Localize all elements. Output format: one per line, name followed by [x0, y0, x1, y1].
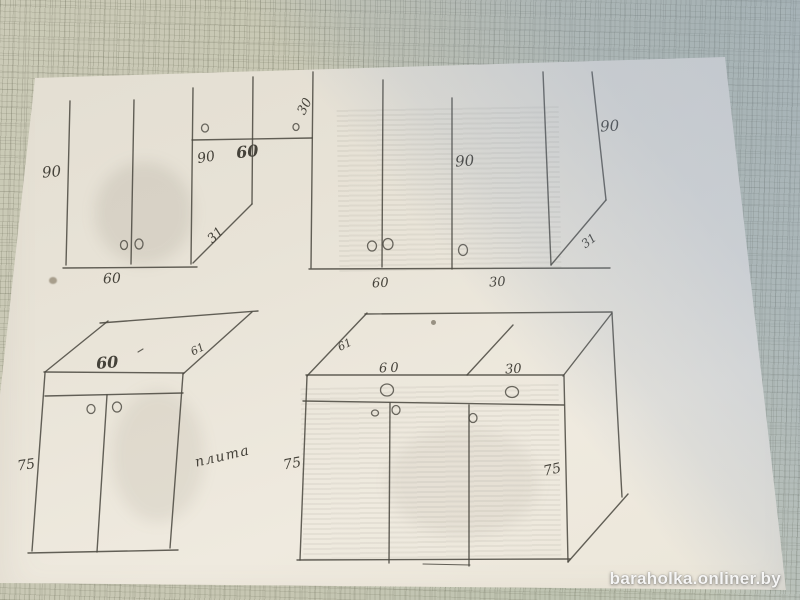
base-cabinet-left-sketch: 60 61 75 [16, 311, 258, 553]
photo-of-cabinet-sketch: 90 60 90 60 31 30 90 [0, 0, 800, 600]
dim-height-label: 90 [41, 162, 62, 182]
cabinet-sketch-drawing: 90 60 90 60 31 30 90 [0, 0, 800, 600]
dim-diagonal-label: 31 [579, 231, 600, 251]
dim-mid-height-label: 90 [454, 151, 475, 170]
wall-cabinet-left-sketch: 90 60 [41, 88, 197, 287]
base-cabinet-right-sketch: 61 60 30 75 75 [282, 312, 628, 566]
dim-shelf-width-label: 30 [489, 275, 507, 291]
dim-inner-width-label: 90 [196, 148, 216, 167]
dim-height-label: 75 [16, 456, 36, 474]
dim-shelf-width-label: 60 [235, 141, 259, 162]
wall-cabinet-right-sketch: 90 90 31 60 30 [309, 72, 620, 291]
dim-back-height-label: 90 [599, 116, 620, 135]
dim-top-width-label: 60 [95, 352, 119, 373]
dim-left-width-label: 60 [379, 361, 402, 377]
dim-width-label: 60 [103, 271, 121, 288]
dim-back-height-label: 75 [542, 460, 563, 479]
wall-corner-unit-sketch: 90 60 31 30 [138, 77, 316, 352]
stove-note: плита [193, 442, 251, 470]
dim-front-height-label: 75 [282, 455, 302, 474]
dim-right-width-label: 30 [505, 362, 523, 378]
watermark-text: baraholka.onliner.by [610, 569, 781, 589]
dim-door-width-label: 60 [372, 276, 389, 292]
dim-diagonal-label: 31 [205, 224, 227, 246]
dim-top-depth-label: 61 [336, 336, 354, 354]
